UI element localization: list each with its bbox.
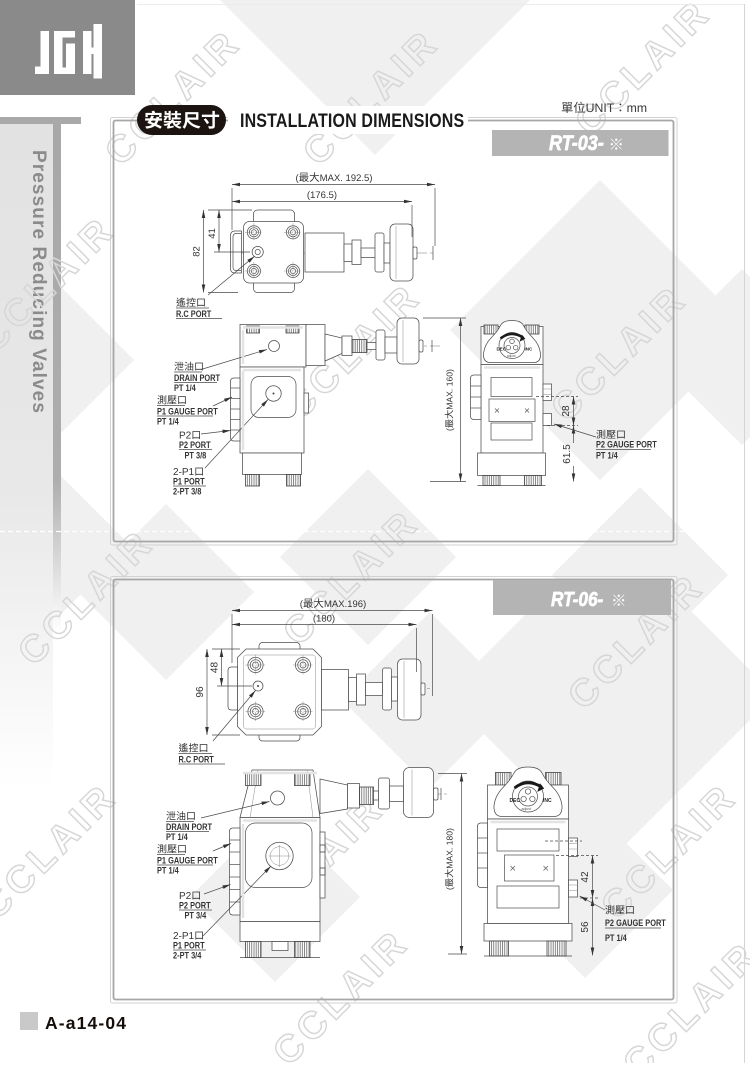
svg-text:P2 GAUGE PORT: P2 GAUGE PORT: [596, 439, 658, 450]
svg-text:R.C PORT: R.C PORT: [176, 308, 212, 319]
svg-text:P2 GAUGE PORT: P2 GAUGE PORT: [605, 917, 667, 928]
svg-text:RT-03-: RT-03-: [549, 132, 604, 156]
svg-text:PT 1/4: PT 1/4: [166, 831, 188, 842]
svg-text:INC: INC: [543, 798, 552, 804]
svg-text:RT-06-: RT-06-: [551, 589, 603, 612]
svg-text:R.C PORT: R.C PORT: [178, 754, 214, 765]
svg-text:PT 1/4: PT 1/4: [596, 450, 618, 461]
svg-text:2-PT 3/8: 2-PT 3/8: [173, 486, 202, 497]
svg-text:28: 28: [561, 405, 572, 417]
svg-text:48: 48: [210, 662, 221, 674]
svg-text:PT 1/4: PT 1/4: [605, 932, 627, 943]
svg-text:56: 56: [580, 921, 591, 933]
svg-text:2-PT 3/4: 2-PT 3/4: [173, 950, 202, 961]
svg-text:INSTALLATION DIMENSIONS: INSTALLATION DIMENSIONS: [240, 110, 464, 132]
svg-text:adjust: adjust: [522, 807, 532, 811]
svg-text:PT 1/4: PT 1/4: [157, 865, 179, 876]
svg-text:42: 42: [580, 871, 591, 883]
svg-text:82: 82: [192, 246, 203, 257]
svg-text:41: 41: [207, 228, 218, 239]
svg-text:96: 96: [195, 686, 206, 698]
svg-text:61.5: 61.5: [562, 444, 573, 464]
svg-text:INC: INC: [525, 347, 534, 352]
svg-text:A-a14-04: A-a14-04: [45, 1013, 127, 1033]
svg-text:DEC: DEC: [497, 347, 507, 352]
svg-text:PT 3/8: PT 3/8: [185, 450, 207, 461]
svg-text:P2 PORT: P2 PORT: [179, 439, 211, 450]
svg-text:PT 3/4: PT 3/4: [185, 910, 207, 921]
svg-text:PT 1/4: PT 1/4: [157, 416, 179, 427]
svg-text:adjust: adjust: [507, 354, 516, 358]
svg-text:PT 1/4: PT 1/4: [174, 382, 196, 393]
svg-text:DEC: DEC: [510, 798, 521, 804]
